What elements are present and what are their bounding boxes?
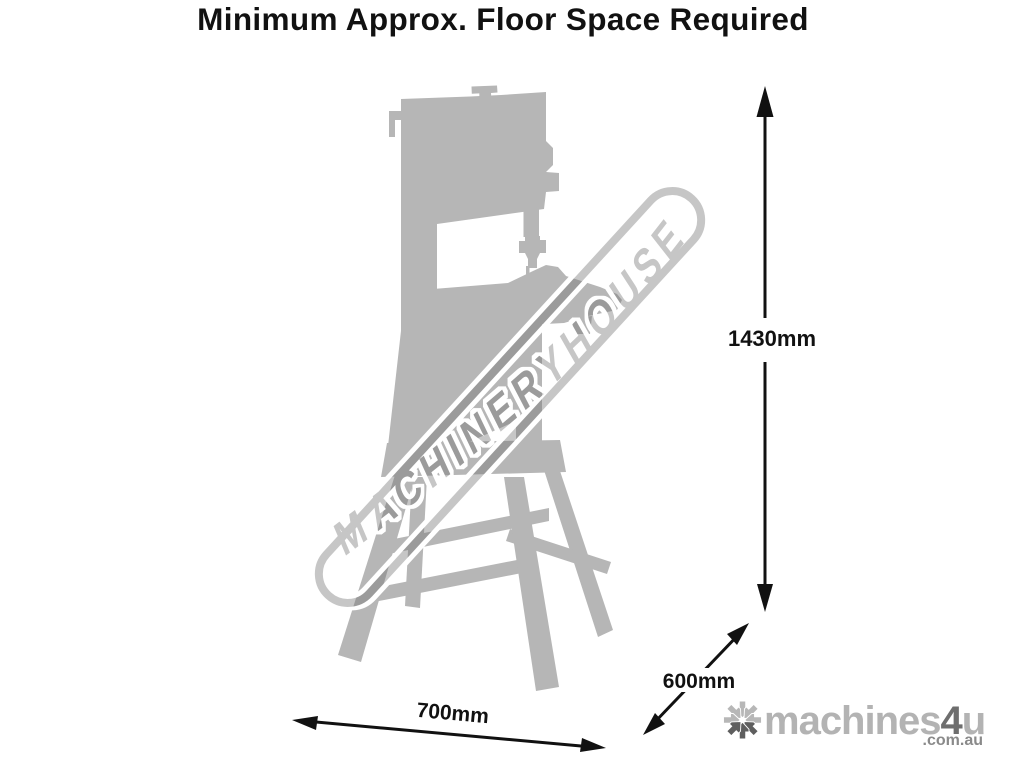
svg-text:.com.au: .com.au bbox=[923, 732, 983, 749]
svg-text:700mm: 700mm bbox=[416, 699, 490, 728]
svg-text:1430mm: 1430mm bbox=[728, 326, 816, 351]
svg-text:600mm: 600mm bbox=[663, 670, 735, 693]
svg-text:Minimum Approx. Floor Space Re: Minimum Approx. Floor Space Required bbox=[197, 1, 809, 37]
